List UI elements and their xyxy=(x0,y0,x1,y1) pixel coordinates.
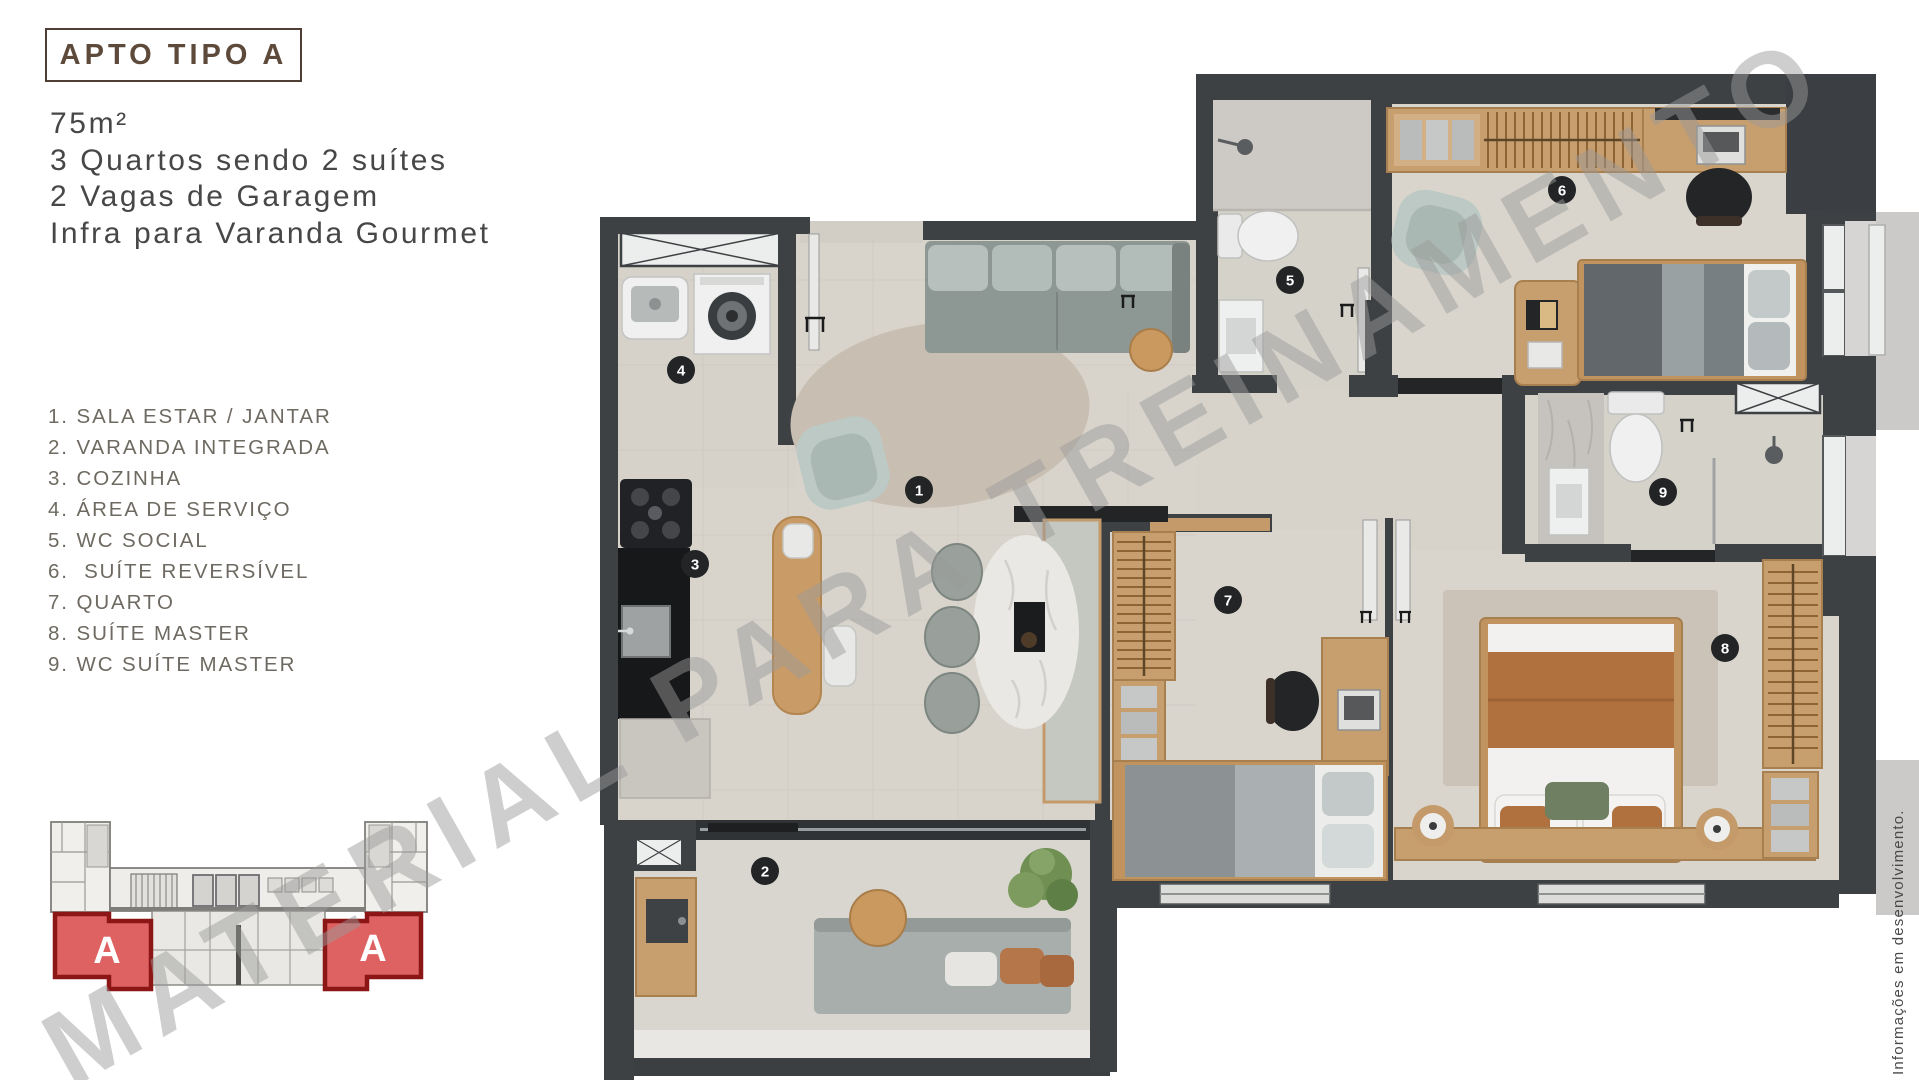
svg-text:5: 5 xyxy=(1286,273,1294,290)
svg-text:2: 2 xyxy=(761,864,769,881)
svg-text:4: 4 xyxy=(677,363,686,380)
svg-text:1: 1 xyxy=(915,483,923,500)
svg-text:3: 3 xyxy=(691,557,699,574)
svg-text:9: 9 xyxy=(1659,485,1667,502)
svg-text:7: 7 xyxy=(1224,593,1232,610)
svg-text:Informações em desenvolvimento: Informações em desenvolvimento. xyxy=(1890,809,1907,1075)
svg-text:8: 8 xyxy=(1721,641,1729,658)
